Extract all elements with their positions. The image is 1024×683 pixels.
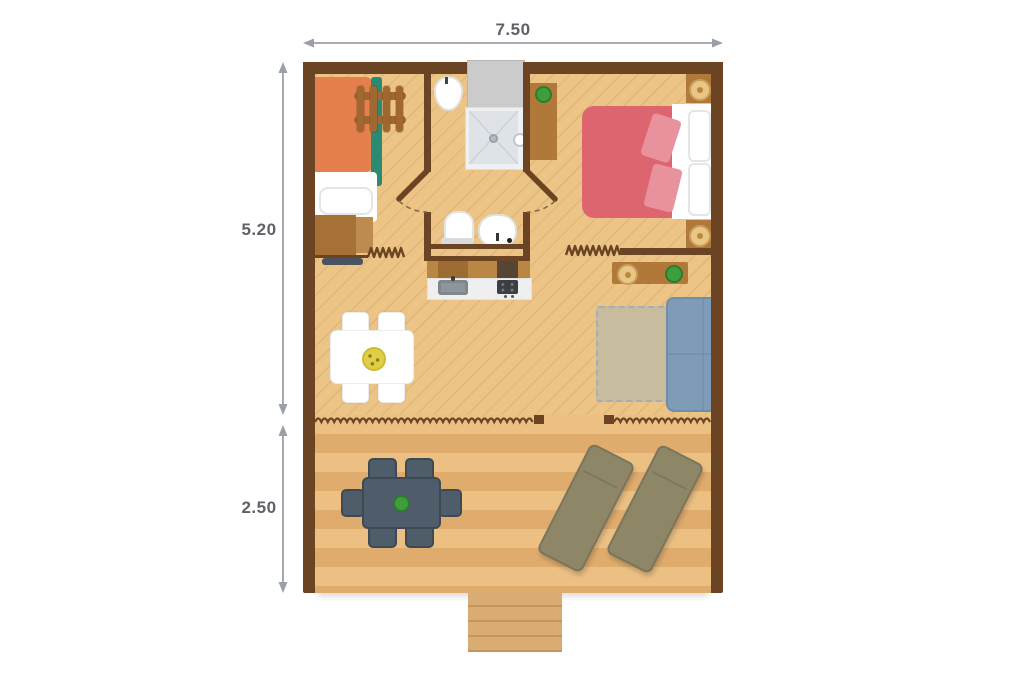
- kitchen-faucet: [451, 276, 455, 281]
- rug: [596, 306, 674, 402]
- canvas-post: [604, 415, 614, 424]
- bidet-tap: [445, 77, 448, 84]
- shower-drain: [489, 134, 498, 143]
- table-lamp: [689, 79, 711, 101]
- bathroom-wall-right-lower: [523, 212, 530, 261]
- bedroom-wall: [620, 248, 711, 255]
- stove: [497, 280, 518, 294]
- sofa-backrest: [702, 299, 704, 410]
- bathroom-wall-left: [424, 74, 431, 172]
- wall-right: [711, 62, 723, 593]
- wc-wall: [424, 244, 530, 249]
- table-lamp: [617, 264, 638, 285]
- bench: [322, 258, 363, 265]
- console-plant: [665, 265, 683, 283]
- dining-chair: [342, 380, 369, 403]
- floor-plan: 7.50 5.20 2.50: [0, 0, 1024, 683]
- kitchen-counter: [427, 278, 532, 300]
- bathroom-wall-right: [523, 74, 530, 172]
- table-lamp: [689, 225, 711, 247]
- bunk-ladder-rung: [370, 86, 377, 132]
- bunk-ladder-rung: [383, 86, 390, 132]
- entrance-mat: [467, 60, 525, 109]
- canvas-post: [534, 415, 544, 424]
- washbasin-soap: [507, 238, 512, 243]
- kitchen-wall: [424, 256, 530, 261]
- stove-knob: [511, 295, 514, 298]
- terrace-chair: [438, 489, 462, 517]
- bed-pillow: [688, 163, 711, 216]
- interior-depth-label: 5.20: [224, 220, 294, 240]
- terrace-plant: [393, 495, 410, 512]
- kitchen-sink: [438, 280, 468, 295]
- washbasin: [478, 214, 517, 248]
- wall-top-right: [523, 62, 723, 74]
- oven: [497, 259, 518, 279]
- shower: [465, 107, 524, 170]
- sofa: [666, 297, 715, 412]
- washbasin-faucet: [496, 233, 499, 241]
- bunk-ladder-rung: [357, 86, 364, 132]
- sofa-seam: [668, 353, 713, 355]
- bunk-ladder-rung: [396, 86, 403, 132]
- bathroom-wall-left-lower: [424, 212, 431, 261]
- dresser: [315, 215, 356, 255]
- steps: [468, 592, 562, 652]
- wall-top-left: [303, 62, 467, 74]
- dining-chair: [378, 380, 405, 403]
- wall-left: [303, 62, 315, 593]
- wardrobe-plant: [535, 86, 552, 103]
- bunk-bed-pillow: [319, 187, 373, 215]
- bedroom-partition-line: [315, 255, 368, 258]
- terrace-depth-label: 2.50: [224, 498, 294, 518]
- bed-pillow: [688, 110, 711, 162]
- width-dimension-label: 7.50: [463, 20, 563, 40]
- stove-knob: [504, 295, 507, 298]
- dresser-door: [356, 217, 373, 253]
- table-centerpiece: [362, 347, 386, 371]
